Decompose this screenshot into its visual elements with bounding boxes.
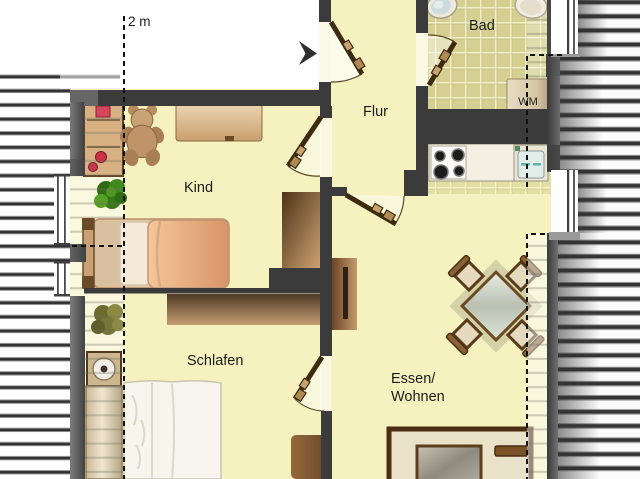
svg-text:Flur: Flur (363, 104, 388, 120)
svg-text:Schlafen: Schlafen (187, 353, 243, 369)
svg-text:2 m: 2 m (128, 14, 151, 29)
svg-text:Essen/: Essen/ (391, 371, 436, 387)
svg-text:Kind: Kind (184, 180, 213, 196)
svg-text:Wohnen: Wohnen (391, 389, 445, 405)
svg-text:Bad: Bad (469, 18, 495, 34)
